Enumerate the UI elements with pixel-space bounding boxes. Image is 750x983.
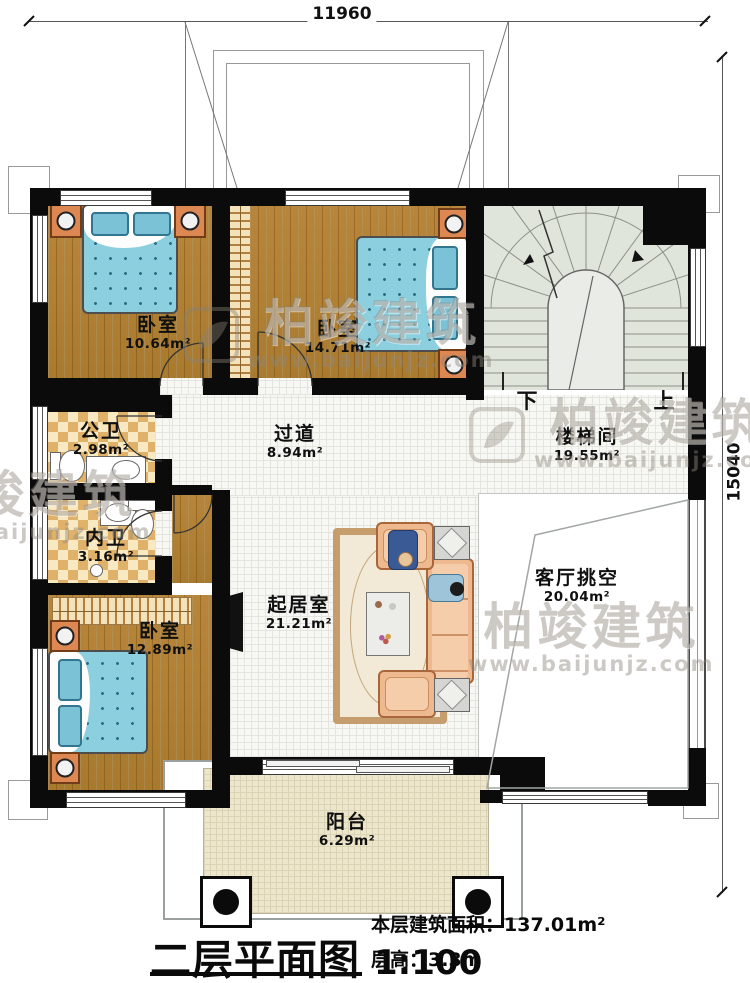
bed-pillow bbox=[91, 212, 129, 236]
room-area: 20.04m² bbox=[535, 589, 619, 605]
armchair-cushion bbox=[385, 677, 429, 711]
label-balcony: 阳台 6.29m² bbox=[319, 813, 375, 849]
wall-public-bath-east-b bbox=[155, 459, 172, 483]
window-bedroom1-north bbox=[60, 190, 152, 206]
bed-pillow bbox=[133, 212, 171, 236]
bed-pillow bbox=[432, 296, 458, 340]
window-void-south bbox=[502, 791, 648, 804]
wall-bedroom3-east bbox=[212, 490, 230, 808]
room-area: 3.16m² bbox=[78, 549, 134, 565]
room-name: 内卫 bbox=[78, 529, 134, 549]
room-area: 6.29m² bbox=[319, 833, 375, 849]
floor-area-text: 本层建筑面积：137.01m² bbox=[371, 908, 605, 943]
ensuite-toilet-bowl bbox=[131, 509, 154, 539]
living-void-area bbox=[478, 493, 701, 794]
stair-up-label: 上 bbox=[654, 385, 675, 415]
ensuite-bath-door-opening bbox=[155, 511, 172, 556]
bedroom-3-nightstand-top bbox=[50, 620, 80, 652]
bed-pillow bbox=[58, 705, 82, 747]
coffee-table bbox=[366, 592, 410, 656]
dimension-right-value: 15040 bbox=[725, 437, 745, 506]
room-area: 21.21m² bbox=[266, 616, 332, 632]
room-area: 2.98m² bbox=[73, 442, 129, 458]
window-bedroom2-north bbox=[285, 190, 410, 206]
bedroom-2-closet bbox=[230, 206, 250, 395]
stair-walkline-tick-up bbox=[682, 372, 684, 390]
window-bedroom3-west bbox=[32, 648, 48, 756]
wall-ensuite-east-a bbox=[155, 500, 172, 511]
wall-bedroom1-closet bbox=[212, 188, 230, 395]
room-name: 阳台 bbox=[319, 813, 375, 833]
label-stairwell: 楼梯间 19.55m² bbox=[554, 428, 620, 464]
room-area: 8.94m² bbox=[267, 445, 323, 461]
wall-public-bath-north bbox=[48, 395, 172, 412]
wall-bedroom3-door-header bbox=[172, 485, 212, 495]
room-name: 起居室 bbox=[266, 596, 332, 616]
floor-height-text: 层高：3.3m bbox=[371, 943, 605, 978]
void-right-window-band bbox=[688, 500, 706, 748]
wall-bedroom2-south-b bbox=[312, 378, 466, 395]
label-public-bathroom: 公卫 2.98m² bbox=[73, 422, 129, 458]
label-living-room: 起居室 21.21m² bbox=[266, 596, 332, 632]
wall-bedroom2-stairwell bbox=[466, 188, 484, 400]
wall-bedroom3-north bbox=[30, 583, 172, 595]
wall-bedroom2-south-a bbox=[230, 378, 258, 395]
label-bedroom-2: 卧室 14.71m² bbox=[305, 320, 371, 356]
ensuite-floor-drain bbox=[90, 564, 103, 577]
wall-bedroom1-south bbox=[48, 378, 160, 395]
window-bedroom1-west bbox=[32, 215, 48, 303]
roof-outline-right-vertical bbox=[508, 22, 509, 188]
dimension-line-right bbox=[722, 57, 723, 893]
bedroom-1-bed bbox=[82, 204, 178, 314]
balcony-sliding-panel-left bbox=[266, 760, 360, 767]
title-underline bbox=[150, 972, 362, 976]
tv bbox=[230, 592, 243, 652]
bed-pillow bbox=[58, 659, 82, 701]
bedroom-1-nightstand-right bbox=[174, 204, 206, 238]
person-head bbox=[450, 582, 464, 596]
bed-headboard bbox=[50, 652, 58, 752]
bed-pillow bbox=[432, 246, 458, 290]
bedroom-3-vestibule-floor bbox=[172, 490, 212, 583]
dimension-top-value: 11960 bbox=[307, 4, 376, 24]
wall-public-bath-east-a bbox=[155, 412, 172, 418]
stair-walkline-tick-down bbox=[502, 372, 504, 390]
armchair-bottom bbox=[378, 670, 436, 718]
window-bedroom3-south bbox=[66, 792, 186, 808]
room-area: 12.89m² bbox=[127, 642, 193, 658]
public-bath-sink bbox=[112, 460, 140, 480]
person-head bbox=[398, 552, 413, 567]
drawing-info: 本层建筑面积：137.01m² 层高：3.3m bbox=[371, 908, 605, 978]
room-name: 卧室 bbox=[305, 320, 371, 340]
bedroom-1-nightstand-left bbox=[50, 204, 82, 238]
balcony-sliding-panel-right bbox=[356, 766, 450, 773]
wall-corner-bottom-right-h bbox=[648, 790, 706, 806]
roof-outline-left-vertical bbox=[185, 22, 186, 188]
label-living-void: 客厅挑空 20.04m² bbox=[535, 569, 619, 605]
side-table-bottom bbox=[434, 678, 470, 712]
window-public-bath-west bbox=[32, 406, 48, 480]
bedroom-1-door-opening bbox=[160, 378, 203, 395]
label-bedroom-3: 卧室 12.89m² bbox=[127, 622, 193, 658]
roof-dormer-inner bbox=[226, 63, 470, 189]
window-ensuite-west bbox=[32, 506, 48, 580]
room-name: 卧室 bbox=[127, 622, 193, 642]
room-area: 10.64m² bbox=[125, 336, 191, 352]
wall-between-bathrooms bbox=[30, 483, 172, 500]
bedroom-2-door-opening bbox=[258, 378, 312, 395]
stair-down-label: 下 bbox=[517, 385, 538, 415]
wall-pilaster-living-void bbox=[500, 757, 545, 792]
room-area: 14.71m² bbox=[305, 340, 371, 356]
label-ensuite-bathroom: 内卫 3.16m² bbox=[78, 529, 134, 565]
bed-headboard bbox=[458, 238, 466, 350]
side-table-top bbox=[434, 526, 470, 560]
public-bath-door-opening bbox=[155, 416, 172, 461]
floor-plan-canvas: 11960 15040 bbox=[0, 0, 750, 983]
room-area: 19.55m² bbox=[554, 448, 620, 464]
room-name: 客厅挑空 bbox=[535, 569, 619, 589]
wall-bedroom1-door-stub bbox=[203, 378, 212, 395]
balcony-column-left bbox=[200, 876, 252, 928]
label-bedroom-1: 卧室 10.64m² bbox=[125, 316, 191, 352]
window-stairwell-east bbox=[690, 248, 706, 347]
room-name: 公卫 bbox=[73, 422, 129, 442]
label-corridor: 过道 8.94m² bbox=[267, 425, 323, 461]
room-name: 楼梯间 bbox=[554, 428, 620, 448]
room-name: 卧室 bbox=[125, 316, 191, 336]
bedroom-3-nightstand-bottom bbox=[50, 752, 80, 784]
room-name: 过道 bbox=[267, 425, 323, 445]
bedroom-2-bed bbox=[356, 236, 468, 352]
bedroom-3-bed bbox=[48, 650, 148, 754]
wall-ensuite-east-b bbox=[155, 556, 172, 583]
